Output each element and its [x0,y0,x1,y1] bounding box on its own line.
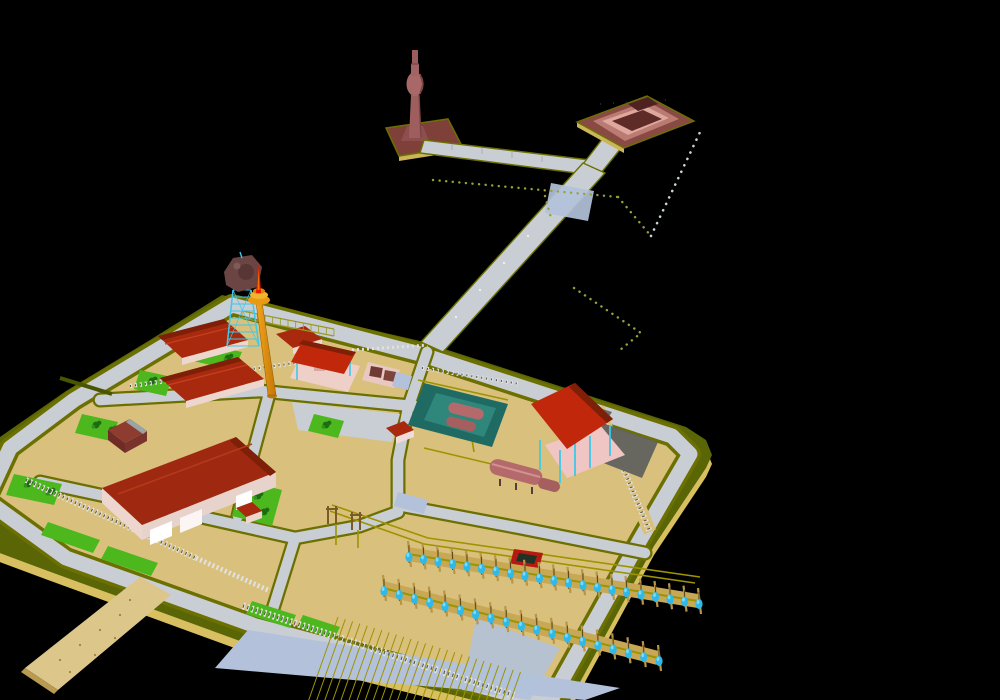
3d-viewport[interactable] [0,0,1000,700]
viewport-background [0,0,1000,700]
